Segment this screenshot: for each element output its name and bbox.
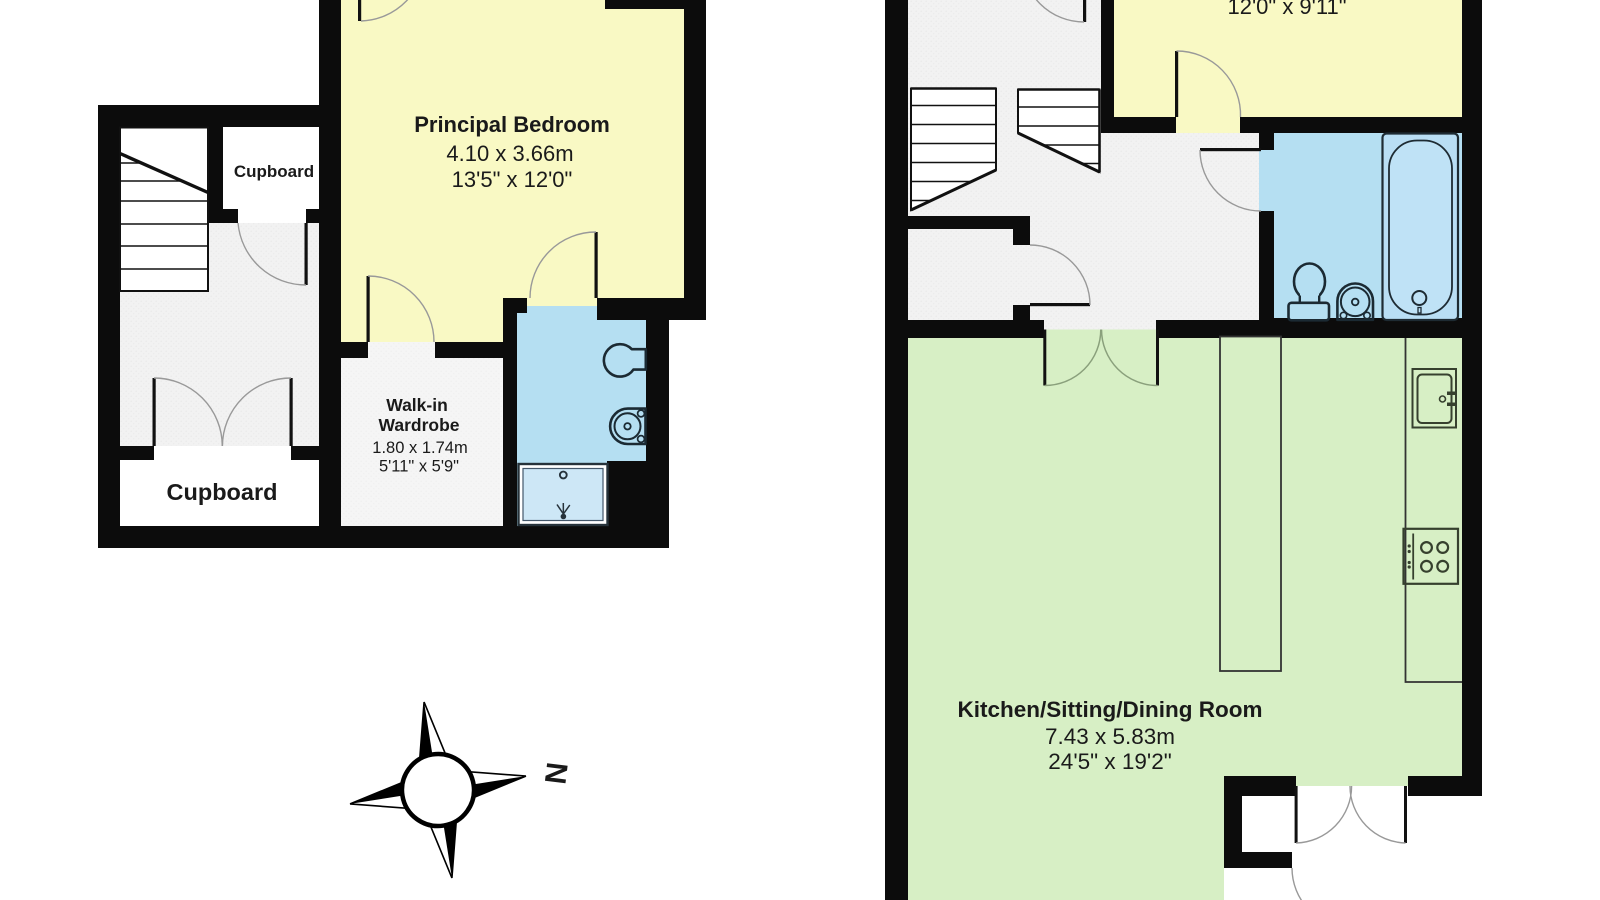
svg-text:4.10 x 3.66m: 4.10 x 3.66m [446,141,573,166]
svg-text:13'5" x 12'0": 13'5" x 12'0" [452,167,573,192]
svg-text:7.43 x 5.83m: 7.43 x 5.83m [1045,724,1175,749]
svg-text:Walk-in: Walk-in [386,395,448,415]
svg-text:5'11" x 5'9": 5'11" x 5'9" [379,458,459,476]
svg-text:24'5" x 19'2": 24'5" x 19'2" [1048,749,1171,774]
svg-text:Principal Bedroom: Principal Bedroom [414,112,610,137]
svg-text:Wardrobe: Wardrobe [378,415,459,435]
svg-text:12'0" x 9'11": 12'0" x 9'11" [1227,0,1346,19]
svg-text:Cupboard: Cupboard [234,162,314,181]
svg-text:Cupboard: Cupboard [167,479,278,505]
svg-text:Kitchen/Sitting/Dining Room: Kitchen/Sitting/Dining Room [958,697,1263,722]
svg-text:N: N [538,760,573,786]
svg-text:1.80 x 1.74m: 1.80 x 1.74m [372,439,467,457]
